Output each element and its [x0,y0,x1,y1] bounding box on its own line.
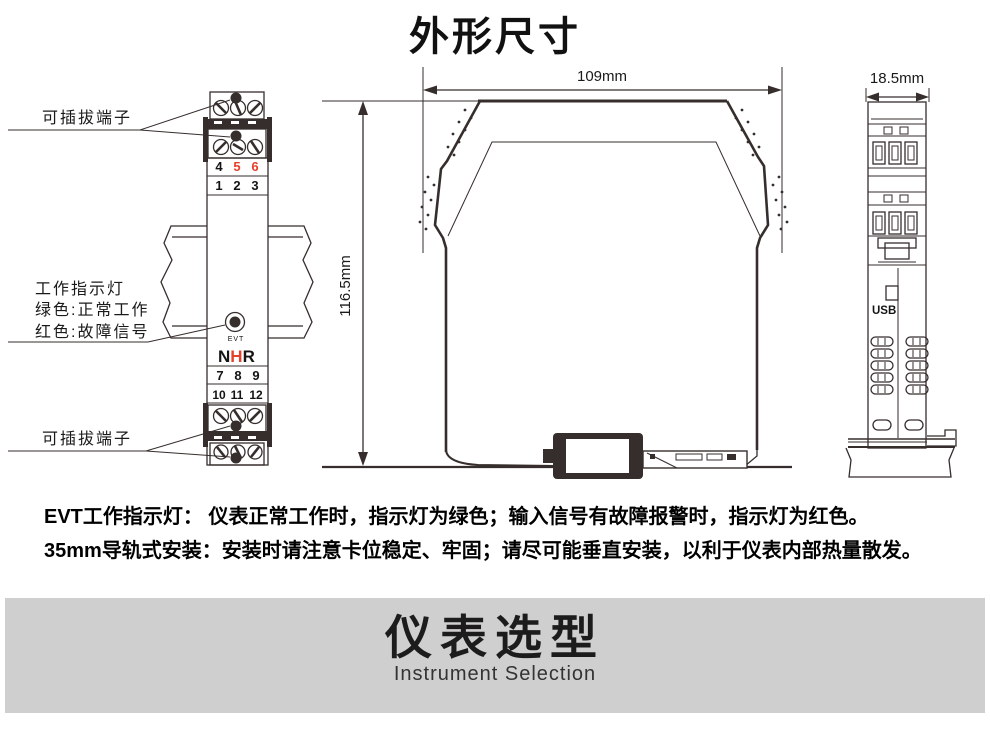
dimension-width: 109mm [423,67,782,253]
rail-clip [543,433,747,479]
top-terminal-assembly [203,92,272,162]
terminal-9: 9 [252,368,259,383]
leader-target-dot [231,421,242,432]
terminal-2: 2 [233,178,240,193]
evt-label: EVT [228,336,245,343]
terminal-8: 8 [234,368,241,383]
terminal-11: 11 [231,388,244,402]
usb-label: USB [872,305,896,317]
texture-dots [419,109,789,231]
banner-subtitle: Instrument Selection [5,663,985,686]
terminal-12: 12 [249,388,263,402]
note-din-mount: 35mm导轨式安装：安装时请注意卡位稳定、牢固；请尽可能垂直安装，以利于仪表内部… [44,534,974,568]
width-dim-label: 109mm [577,68,627,85]
leader-target-dot [231,453,242,464]
callout-top-terminals: 可插拔端子 [8,100,230,137]
module-body [207,158,268,465]
end-view-details: USB [868,119,926,438]
arrowhead-left-icon [866,93,879,102]
terminal-numbers-top: 4 5 6 1 2 3 [207,159,268,195]
label-indicator-green: 绿色:正常工作 [35,301,149,319]
evt-indicator-light: EVT [226,313,245,344]
dimension-diagram: 可插拔端子 工作指示灯 绿色:正常工作 红色:故障信号 可插拔端子 [0,0,990,500]
terminal-1: 1 [215,178,222,193]
section-banner: 仪表选型 Instrument Selection [5,598,985,713]
latch-end [927,430,956,446]
terminal-7: 7 [216,368,223,383]
housing-profile [322,101,792,467]
arrowhead-down-icon [358,452,368,466]
label-pluggable-terminal-bottom: 可插拔端子 [42,430,132,448]
arrowhead-right-icon [768,86,782,95]
front-view: 可插拔端子 工作指示灯 绿色:正常工作 红色:故障信号 可插拔端子 [8,92,313,465]
rail-cross-section [846,430,956,477]
side-view: 109mm 116.5mm [322,67,792,479]
end-view: 18.5mm [846,70,956,477]
terminal-4: 4 [215,159,223,174]
arrowhead-right-icon [916,93,929,102]
banner-title: 仪表选型 [5,598,985,662]
label-pluggable-terminal-top: 可插拔端子 [42,109,132,127]
note-evt-indicator: EVT工作指示灯： 仪表正常工作时，指示灯为绿色；输入信号有故障报警时，指示灯为… [44,500,974,534]
nhr-logo: NHR [218,347,255,366]
terminal-numbers-bottom: 7 8 9 10 11 12 [207,366,268,403]
label-indicator-red: 红色:故障信号 [35,323,149,341]
leader-line-bottom [146,426,230,457]
terminal-5: 5 [233,159,240,174]
indicator-led-icon [230,317,241,328]
callout-indicator: 工作指示灯 绿色:正常工作 红色:故障信号 [8,280,225,342]
arrowhead-up-icon [358,101,368,115]
dimension-height: 116.5mm [337,101,368,466]
usb-port [886,286,898,300]
dimension-depth: 18.5mm [866,70,929,102]
notes: EVT工作指示灯： 仪表正常工作时，指示灯为绿色；输入信号有故障报警时，指示灯为… [44,500,974,568]
terminal-3: 3 [251,178,258,193]
page: 外形尺寸 可插拔端子 工作指示灯 绿色:正常工作 红色:故障信号 [0,0,990,739]
label-indicator-title: 工作指示灯 [35,280,125,298]
terminal-10: 10 [212,388,226,402]
leader-line-indicator [148,325,225,342]
leader-target-dot [231,93,242,104]
height-dim-label: 116.5mm [337,255,354,316]
terminal-6: 6 [251,159,258,174]
arrowhead-left-icon [423,86,437,95]
callout-bottom-terminals: 可插拔端子 [8,426,230,457]
vent-grilles [871,337,928,430]
depth-dim-label: 18.5mm [870,70,924,87]
